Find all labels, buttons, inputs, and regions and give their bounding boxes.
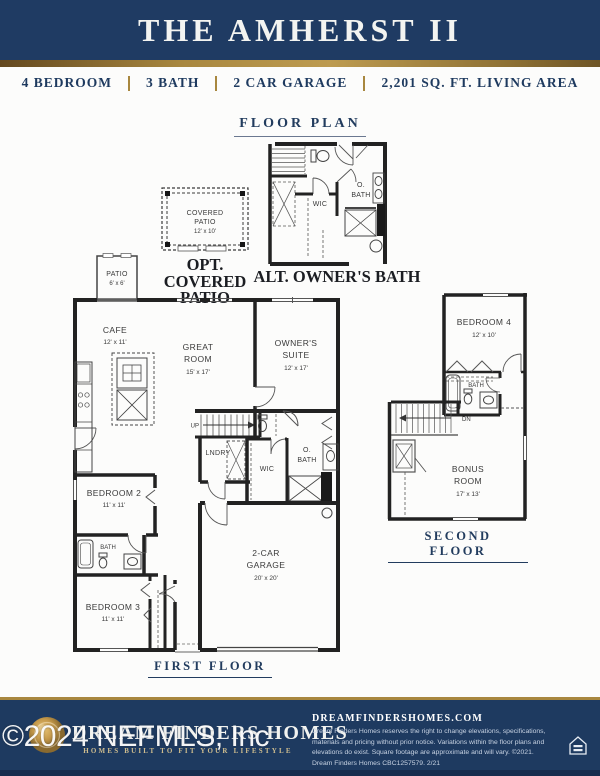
owners-bath: O. BATH (289, 444, 338, 501)
room-label-great-room: GREAT (183, 342, 214, 352)
stairs-up-label: UP (191, 424, 199, 430)
svg-text:ROOM: ROOM (454, 476, 482, 486)
first-floor-plan: PATIO 6' x 6' (70, 250, 350, 660)
patio-bump: PATIO 6' x 6' (97, 254, 137, 301)
caption-first-floor: FIRST FLOOR (140, 657, 280, 678)
svg-text:12' x 10': 12' x 10' (472, 332, 496, 339)
sink-icon (373, 173, 384, 203)
toilet-icon (311, 150, 329, 162)
room-label-cafe: CAFE (103, 325, 127, 335)
room-label-owners-suite: OWNER'S (275, 338, 318, 348)
specs-row: 4 BEDROOM 3 BATH 2 CAR GARAGE 2,201 SQ. … (0, 75, 600, 91)
svg-text:17' x 13': 17' x 13' (456, 491, 480, 498)
spec-bedrooms: 4 BEDROOM (22, 75, 112, 91)
spec-sqft: 2,201 SQ. FT. LIVING AREA (381, 75, 578, 91)
svg-text:11' x 11': 11' x 11' (103, 502, 126, 509)
spec-baths: 3 BATH (146, 75, 199, 91)
header-banner: THE AMHERST II (0, 0, 600, 60)
kitchen-counter (75, 362, 92, 472)
room-label-garage: 2-CAR (252, 548, 280, 558)
door-swing (75, 428, 96, 449)
door-swing (255, 387, 275, 407)
svg-text:BATH: BATH (297, 457, 316, 464)
laundry-room: LNDRY (200, 437, 250, 503)
flyer-page: THE AMHERST II 4 BEDROOM 3 BATH 2 CAR GA… (0, 0, 600, 776)
front-entry (159, 580, 175, 650)
garage: 2-CAR GARAGE 20' x 20' (200, 503, 338, 650)
svg-text:SUITE: SUITE (282, 350, 309, 360)
website-url: DREAMFINDERSHOMES.COM (312, 713, 550, 724)
closet (393, 440, 426, 472)
room-label-obath: O. (357, 182, 365, 189)
room-label-wic: WIC (313, 201, 328, 208)
disclaimer-text: Dream Finders Homes reserves the right t… (312, 727, 550, 769)
garage-door (217, 648, 318, 652)
bath-room: BATH (444, 372, 500, 415)
room-label-lndry: LNDRY (205, 450, 230, 457)
svg-text:11' x 11': 11' x 11' (102, 616, 125, 623)
room-label-obath: O. (303, 447, 311, 454)
room-label-wic: WIC (260, 466, 275, 473)
svg-text:6' x 6': 6' x 6' (109, 281, 124, 287)
footer-bottom-strip (0, 770, 600, 776)
room-label-bed4: BEDROOM 4 (457, 317, 512, 327)
svg-text:20' x 20': 20' x 20' (254, 575, 278, 582)
closet (273, 182, 295, 226)
bedroom3: BEDROOM 3 11' x 11' (86, 575, 165, 650)
door-swing (283, 411, 332, 449)
room-dims-covered-patio: 12' x 10' (194, 229, 216, 235)
second-floor-plan: BATH DN BEDROOM 4 12' x 10' BONUS ROOM 1… (383, 288, 533, 526)
water-heater-icon (370, 240, 382, 252)
gold-divider (0, 60, 600, 67)
stairs (272, 146, 305, 174)
room-label-bath: BATH (468, 383, 484, 389)
stairs-dn-label: DN (462, 417, 471, 423)
room-label-bath: BATH (100, 545, 116, 551)
svg-text:12' x 17': 12' x 17' (284, 365, 308, 372)
svg-text:ROOM: ROOM (184, 354, 212, 364)
wall-fill (377, 204, 385, 236)
spec-divider (128, 76, 130, 91)
svg-text:12' x 11': 12' x 11' (103, 339, 126, 346)
room-label-patio: PATIO (106, 271, 128, 278)
door-swing (503, 354, 521, 372)
stairs: UP (191, 413, 260, 437)
stairs: DN (391, 402, 471, 435)
room-label-bed3: BEDROOM 3 (86, 602, 141, 612)
caption-second-floor: SECOND FLOOR (388, 529, 528, 563)
water-heater-icon (322, 508, 332, 518)
page-title: THE AMHERST II (138, 12, 462, 49)
kitchen-island (112, 353, 154, 425)
floor-plan-heading: FLOOR PLAN (0, 114, 600, 137)
svg-text:BATH: BATH (351, 192, 370, 199)
svg-text:15' x 17': 15' x 17' (186, 369, 210, 376)
shower-icon (345, 208, 376, 236)
wic-room: WIC (247, 438, 287, 503)
svg-text:GARAGE: GARAGE (247, 560, 286, 570)
spec-divider (363, 76, 365, 91)
room-label-bonus: BONUS (452, 464, 484, 474)
alt-owners-bath-plan: WIC O. BATH (265, 138, 397, 268)
room-label-covered-patio: COVERED (187, 210, 224, 217)
bath-room: BATH (75, 535, 158, 575)
room-label-bed2: BEDROOM 2 (87, 488, 142, 498)
mls-watermark: ©2024 NEFMLS, Inc (2, 720, 269, 754)
opt-covered-patio-plan: COVERED PATIO 12' x 10' (158, 184, 252, 256)
window (453, 294, 527, 521)
spec-divider (215, 76, 217, 91)
spec-garage: 2 CAR GARAGE (233, 75, 347, 91)
bedroom2: BEDROOM 2 11' x 11' (75, 475, 155, 535)
svg-text:PATIO: PATIO (194, 219, 216, 226)
equal-housing-icon (569, 736, 587, 755)
